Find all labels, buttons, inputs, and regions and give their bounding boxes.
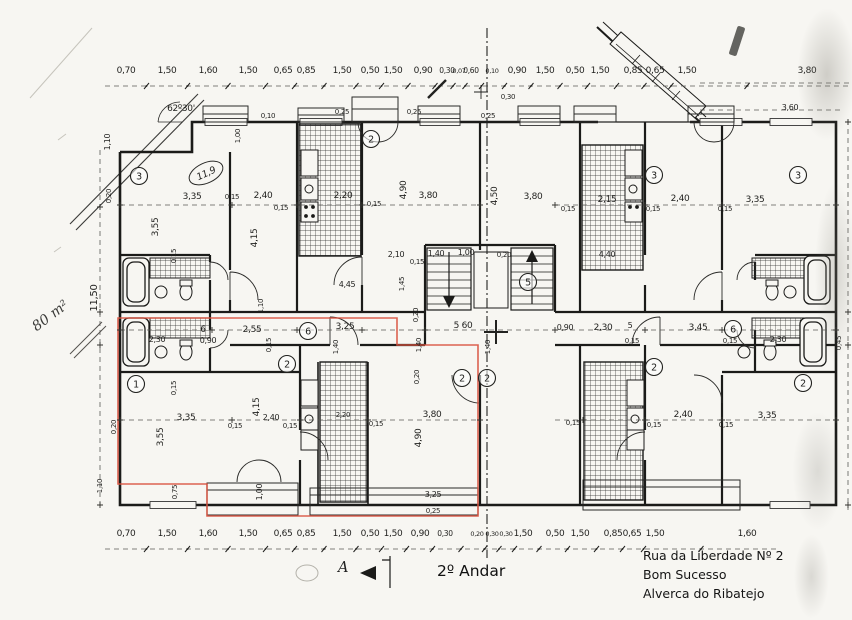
dim-label: 1,40 <box>428 249 445 258</box>
dim-label: 0,15 <box>561 205 575 213</box>
dim-tick-dot <box>481 85 483 87</box>
dim-label: 3,25 <box>336 322 355 332</box>
dim-tick-dot <box>622 548 624 550</box>
dim-label: 0,15 <box>723 337 737 345</box>
room-badge-number: 3 <box>651 170 657 181</box>
scanned-floorplan-page: 0,701,501,601,500,650,851,500,501,500,90… <box>0 0 852 620</box>
dim-label: 0,30 <box>501 93 515 101</box>
dim-tick-dot <box>381 85 383 87</box>
dim-label: 4,40 <box>599 250 616 259</box>
svg-text:11,9: 11,9 <box>195 165 218 184</box>
dim-tick-dot <box>504 85 506 87</box>
area-note-underline <box>70 322 106 358</box>
dim-tick-dot <box>434 85 436 87</box>
dim-label: 0,15 <box>225 193 239 201</box>
dim-label: 0,15 <box>228 422 242 430</box>
dim-label: 0,85 <box>297 529 316 539</box>
dim-label: 0,20 <box>412 308 420 322</box>
dim-label: 0,25 <box>335 108 349 116</box>
dim-label: 3,80 <box>419 191 438 201</box>
dim-tick-dot <box>464 85 466 87</box>
dim-label: 11,50 <box>89 284 100 311</box>
dim-cross <box>845 342 851 348</box>
dim-label: 1,40 <box>484 340 492 354</box>
section-marker-label: A <box>338 560 348 576</box>
dim-tick-dot <box>227 85 229 87</box>
dim-label: 0,50 <box>361 529 380 539</box>
dim-tick-dot <box>670 85 672 87</box>
dim-label: 3,35 <box>177 413 196 423</box>
dim-label: 3,45 <box>689 323 708 333</box>
dim-label: 6 <box>200 325 206 335</box>
dim-label: 1,00 <box>234 129 242 143</box>
dim-label: 1,50 <box>591 66 610 76</box>
room-badge-number: 2 <box>651 362 657 373</box>
room-badge-number: 6 <box>730 324 736 335</box>
dim-label: 1,40 <box>415 338 423 352</box>
dim-tick-dot <box>265 85 267 87</box>
dim-tick-dot <box>498 548 500 550</box>
dim-tick-dot <box>227 548 229 550</box>
dim-label: 1,50 <box>333 66 352 76</box>
dimension-lines <box>100 83 850 549</box>
dim-label: 1,00 <box>255 483 264 500</box>
dim-label: 0,10 <box>485 67 498 75</box>
dim-label: 0,20 <box>413 370 421 384</box>
dim-tick-dot <box>355 548 357 550</box>
room-badge-number: 2 <box>459 373 465 384</box>
dim-label: 2,40 <box>674 410 693 420</box>
plot-boundary-line <box>70 94 204 230</box>
dim-cross <box>359 327 365 333</box>
dim-label: 1,60 <box>199 66 218 76</box>
dim-label: 3,35 <box>183 192 202 202</box>
dim-label: 2,40 <box>671 194 690 204</box>
dim-label: 2,30 <box>770 335 787 344</box>
dim-label: 3,80 <box>423 410 442 420</box>
room-badge-number: 1 <box>133 379 139 390</box>
dim-label: 2,20 <box>334 191 353 201</box>
section-marker-arrow <box>360 556 390 588</box>
address-line-3: Alverca do Ribatejo <box>643 584 784 603</box>
dim-tick-dot <box>567 548 569 550</box>
dim-tick-dot <box>355 85 357 87</box>
dim-label: 0,25 <box>426 507 440 515</box>
dim-label: 0,90 <box>411 529 430 539</box>
dim-tick-dot <box>530 85 532 87</box>
dim-label: 0,90 <box>508 66 527 76</box>
dim-label: 0,15 <box>265 338 273 352</box>
dim-cross <box>97 502 103 508</box>
dim-tick-dot <box>616 85 618 87</box>
dim-tick-dot <box>746 85 748 87</box>
dim-label: 0,10 <box>261 112 275 120</box>
dim-tick-dot <box>407 85 409 87</box>
dim-cross <box>422 327 428 333</box>
dim-label: 0,15 <box>625 337 639 345</box>
dim-tick-dot <box>146 85 148 87</box>
dim-tick-dot <box>559 85 561 87</box>
dim-cross <box>833 417 839 423</box>
address-block: Rua da Liberdade Nº 2 Bom Sucesso Alverc… <box>643 546 784 603</box>
dim-label: 0,15 <box>369 420 383 428</box>
dim-cross <box>97 204 103 210</box>
dim-label: 0,15 <box>367 200 381 208</box>
dim-cross <box>97 342 103 348</box>
dim-label: 0,50 <box>566 66 585 76</box>
dim-tick-dot <box>484 548 486 550</box>
dim-label: 1,50 <box>646 529 665 539</box>
dim-label: 1,10 <box>103 133 112 150</box>
dim-label: 0,70 <box>117 66 136 76</box>
dim-tick-dot <box>294 548 296 550</box>
dim-label: 0,30 <box>437 529 453 538</box>
dim-cross <box>117 202 123 208</box>
dim-label: 1,50 <box>384 529 403 539</box>
address-line-2: Bom Sucesso <box>643 565 784 584</box>
dim-label: 2,40 <box>263 413 280 422</box>
dim-label: 0,30 <box>485 530 498 538</box>
dim-label: 3,55 <box>156 428 166 447</box>
dim-label: 1,50 <box>158 529 177 539</box>
dim-label: 5 <box>628 321 633 330</box>
dim-cross <box>845 119 851 125</box>
dim-label: 3,55 <box>151 218 161 237</box>
room-area-note: 11,9 <box>185 156 226 189</box>
dim-tick-dot <box>643 85 645 87</box>
dim-tick-dot <box>146 548 148 550</box>
dim-label: 0,25 <box>407 108 421 116</box>
dim-label: 0,50 <box>361 66 380 76</box>
dim-label: 0,15 <box>718 205 732 213</box>
dim-label: 3,35 <box>758 411 777 421</box>
dim-tick-dot <box>452 85 454 87</box>
dim-label: 0,75 <box>171 485 179 499</box>
dim-label: 1,50 <box>239 529 258 539</box>
dim-label: 0,15 <box>647 421 661 429</box>
dim-label: 0,20 <box>497 251 511 259</box>
dim-label: 0,65 <box>623 529 642 539</box>
dim-tick-dot <box>406 548 408 550</box>
dim-tick-dot <box>460 548 462 550</box>
dim-label: 3,80 <box>524 192 543 202</box>
dim-cross <box>833 202 839 208</box>
dim-cross <box>845 309 851 315</box>
dim-label: 3,60 <box>782 103 799 112</box>
dim-cross <box>552 202 558 208</box>
dim-label: 1,00 <box>458 248 475 257</box>
angle-note-label: 62º30' <box>167 104 195 114</box>
dimension-labels: 0,701,501,601,500,650,851,500,501,500,90… <box>89 66 843 539</box>
dim-label: 0,85 <box>297 66 316 76</box>
dim-label: 0,85 <box>624 66 643 76</box>
dim-label: 1,50 <box>536 66 555 76</box>
dim-label: 0,15 <box>170 249 178 263</box>
dim-label: 4,45 <box>339 280 356 289</box>
dim-label: 1,10 <box>96 479 104 493</box>
dim-tick-dot <box>323 85 325 87</box>
room-badge-number: 2 <box>484 373 490 384</box>
dim-label: 1,45 <box>398 277 406 291</box>
dim-label: 2,40 <box>254 191 273 201</box>
room-badge-number: 2 <box>284 359 290 370</box>
room-badge-number: 6 <box>305 326 311 337</box>
dim-label: 1,10 <box>257 299 265 313</box>
dim-label: 4,90 <box>414 428 424 447</box>
dim-label: 0,15 <box>719 421 733 429</box>
room-badge-number: 2 <box>800 378 806 389</box>
dim-label: 4,15 <box>250 229 260 248</box>
dim-label: 1,50 <box>571 529 590 539</box>
floorplan-drawing: 0,701,501,601,500,650,851,500,501,500,90… <box>0 0 852 620</box>
dim-label: 2,15 <box>598 195 617 205</box>
floor-title: 2º Andar <box>437 562 505 580</box>
dim-label: 4,15 <box>252 398 262 417</box>
room-badge-number: 3 <box>795 170 801 181</box>
dim-label: 0,15 <box>646 205 660 213</box>
dim-tick-dot <box>432 548 434 550</box>
dim-label: 0,85 <box>604 529 623 539</box>
dim-label: 2,55 <box>243 325 262 335</box>
dim-label: 0,90 <box>414 66 433 76</box>
dim-label: 0,15 <box>283 422 297 430</box>
dim-label: 1,40 <box>332 340 340 354</box>
dim-label: 2,10 <box>388 250 405 259</box>
dim-label: 0,45 <box>835 336 843 350</box>
dim-tick-dot <box>323 548 325 550</box>
dim-label: 0,65 <box>274 66 293 76</box>
dim-tick-dot <box>381 548 383 550</box>
dim-tick-dot <box>538 548 540 550</box>
dim-label: 0,90 <box>557 323 574 332</box>
dim-label: 0,20 <box>105 189 113 203</box>
dim-label: 0,65 <box>274 529 293 539</box>
dim-label: 1,50 <box>514 529 533 539</box>
dim-tick-dot <box>596 548 598 550</box>
dim-label: 2,20 <box>336 411 350 419</box>
dim-label: 1,50 <box>158 66 177 76</box>
dim-label: 1,50 <box>239 66 258 76</box>
room-badge-number: 3 <box>136 171 142 182</box>
room-badge-number: 5 <box>525 277 531 288</box>
dim-label: 1,50 <box>333 529 352 539</box>
dim-tick-dot <box>514 548 516 550</box>
dim-label: 4,50 <box>490 186 500 205</box>
dim-label: 0,25 <box>481 112 495 120</box>
dim-label: 1,50 <box>384 66 403 76</box>
dim-label: 0,15 <box>410 258 424 266</box>
dim-label: 0,60 <box>463 66 479 75</box>
dim-label: 2,30 <box>594 323 613 333</box>
dim-label: 4,90 <box>399 180 409 199</box>
dim-label: 0,50 <box>546 529 565 539</box>
dim-label: 0,65 <box>646 66 665 76</box>
dim-label: 0,15 <box>170 381 178 395</box>
dim-label: 0,20 <box>110 420 118 434</box>
dim-tick-dot <box>265 548 267 550</box>
dim-label: 3,35 <box>746 195 765 205</box>
section-line <box>428 28 508 558</box>
room-badge-number: 2 <box>368 134 374 145</box>
dim-tick-dot <box>187 85 189 87</box>
dim-label: 0,15 <box>566 419 580 427</box>
dim-label: 2,30 <box>149 335 166 344</box>
address-line-1: Rua da Liberdade Nº 2 <box>643 546 784 565</box>
dim-cross <box>833 327 839 333</box>
dim-label: 1,50 <box>678 66 697 76</box>
dim-label: 0,70 <box>117 529 136 539</box>
dim-label: 3,25 <box>425 490 442 499</box>
dim-cross <box>845 502 851 508</box>
dim-label: 0,15 <box>274 204 288 212</box>
dim-label: 5 60 <box>454 321 473 331</box>
dim-cross <box>642 327 648 333</box>
dim-tick-dot <box>294 85 296 87</box>
dim-tick-dot <box>587 85 589 87</box>
dim-tick-dot <box>187 548 189 550</box>
dim-label: 0,20 <box>470 530 483 538</box>
dim-cross <box>477 202 483 208</box>
dim-label: 0,30 <box>499 530 512 538</box>
dim-label: 0,90 <box>200 336 217 345</box>
dim-label: 1,60 <box>738 529 757 539</box>
dim-label: 1,60 <box>199 529 218 539</box>
dim-label: 3,80 <box>798 66 817 76</box>
